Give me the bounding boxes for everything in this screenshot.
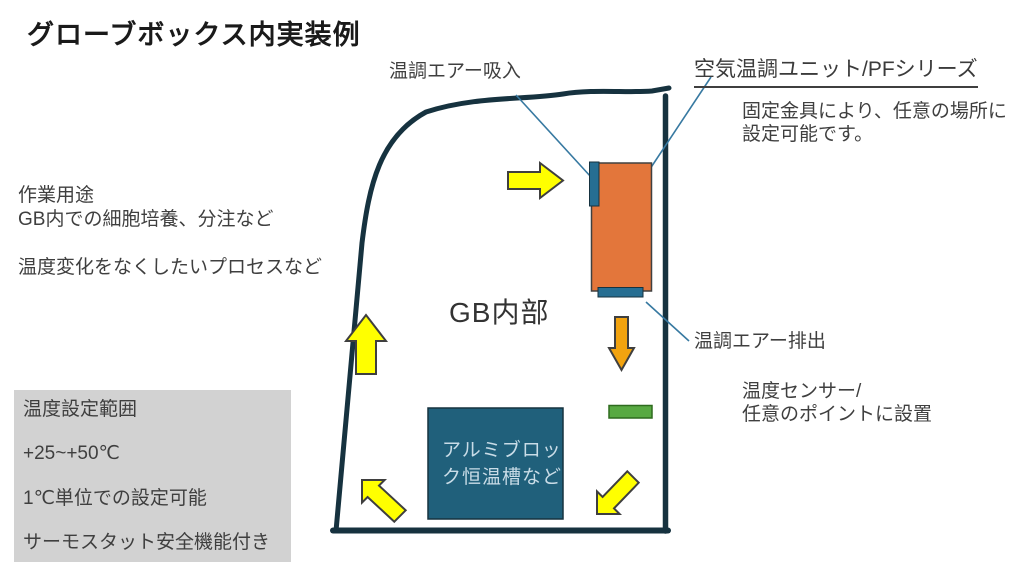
label-gb-interior: GB内部 — [449, 291, 549, 331]
unit-series-heading: 空気温調ユニット/PFシリーズ — [694, 53, 978, 88]
chamber-label: アルミブロッ ク恒温槽など — [428, 408, 563, 519]
temperature-sensor — [609, 406, 652, 419]
airflow-arrow-upleft-icon — [362, 480, 406, 522]
leader-line-intake — [516, 95, 591, 177]
usage-notes: 作業用途 GB内での細胞培養、分注など 温度変化をなくしたいプロセスなど — [18, 184, 322, 280]
spec-panel-step: 1℃単位での設定可能 — [23, 488, 283, 510]
air-unit-body — [592, 163, 652, 291]
spec-panel-safety: サーモスタット安全機能付き — [23, 532, 283, 554]
airflow-arrow-right-icon — [508, 163, 563, 198]
spec-panel-range: +25~+50℃ — [23, 443, 283, 465]
chamber-label-line2: ク恒温槽など — [442, 464, 563, 491]
label-exhaust: 温調エアー排出 — [694, 330, 826, 353]
exhaust-duct — [598, 288, 643, 298]
unit-mounting-note: 固定金具により、任意の場所に 設定可能です。 — [742, 100, 1007, 146]
airflow-arrow-downleft-icon — [597, 471, 639, 514]
spec-panel-title: 温度設定範囲 — [23, 399, 283, 421]
slide-canvas: グローブボックス内実装例 温調エアー吸入 空気温調ユニット/PFシリーズ 固定金… — [0, 0, 1024, 576]
chamber-label-line1: アルミブロッ — [442, 437, 563, 464]
intake-duct — [590, 162, 600, 206]
spec-panel: 温度設定範囲 +25~+50℃ 1℃単位での設定可能 サーモスタット安全機能付き — [14, 390, 291, 562]
label-sensor: 温度センサー/ 任意のポイントに設置 — [742, 380, 932, 426]
label-intake: 温調エアー吸入 — [389, 60, 521, 83]
page-title: グローブボックス内実装例 — [27, 13, 361, 52]
airflow-arrow-down-icon — [609, 317, 634, 370]
